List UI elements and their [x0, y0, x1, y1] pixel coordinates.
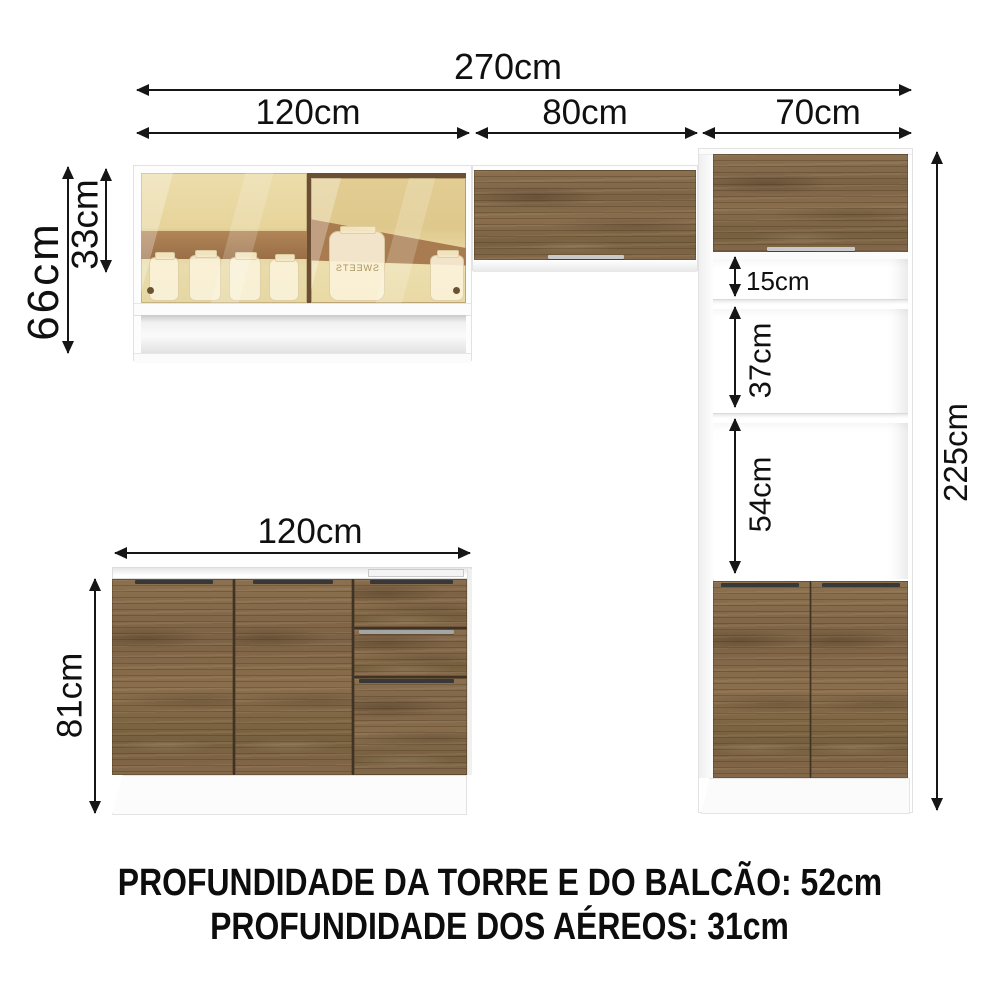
dim-label-section-right: 70cm	[718, 95, 918, 130]
dim-label-gap-bottom: 54cm	[735, 424, 785, 564]
dim-arrow-counter-height	[94, 579, 96, 813]
dim-label-section-left: 120cm	[208, 95, 408, 130]
tower-bottom-door-left	[713, 581, 810, 778]
wall-cabinet-80	[472, 165, 698, 271]
counter-drawer-2	[354, 629, 467, 676]
tower-left-panel	[699, 149, 714, 778]
glass-reflection	[311, 178, 466, 303]
tower-top-door-handle	[767, 247, 855, 251]
dim-arrow-glass-door-height	[105, 169, 107, 272]
counter-door-left	[112, 579, 233, 775]
dim-arrow-total-width	[137, 89, 911, 91]
tower-bottom-door-right-handle	[822, 583, 900, 587]
dim-label-glass-door-height: 33cm	[58, 139, 112, 309]
tower-base	[701, 778, 910, 814]
dim-arrow-section-left	[137, 132, 469, 134]
glass-door-left	[141, 173, 307, 303]
dim-label-total-height: 225cm	[930, 352, 982, 552]
product-dimension-diagram: 270cm 120cm 80cm 70cm 66cm 33cm	[0, 0, 1000, 1000]
dim-label-gap-middle: 37cm	[735, 290, 785, 430]
glass-door-row: SWEETS	[141, 173, 466, 303]
countertop	[112, 567, 472, 579]
wall-cabinet-80-bottom	[473, 260, 697, 272]
dim-arrow-section-right	[703, 132, 911, 134]
counter-drawer-2-handle	[359, 630, 454, 634]
counter-drawer-1	[354, 579, 467, 627]
dim-arrow-section-middle	[476, 132, 697, 134]
counter-door-left-handle	[135, 580, 213, 584]
wall-cabinet-bottom-edge	[134, 353, 471, 363]
wall-cabinet-80-handle	[548, 255, 624, 259]
dim-label-total-width: 270cm	[408, 49, 608, 85]
counter-drawer-3	[354, 678, 467, 775]
dim-label-counter-width: 120cm	[210, 514, 410, 549]
tower-bottom-doors	[713, 581, 908, 778]
dim-label-section-middle: 80cm	[485, 95, 685, 130]
glass-reflection	[141, 173, 307, 303]
countertop-tray	[368, 569, 464, 577]
glass-door-right: SWEETS	[307, 173, 466, 303]
dim-label-counter-height: 81cm	[45, 610, 95, 780]
wall-cabinet-80-door	[474, 170, 696, 260]
wall-cabinet-glass: SWEETS	[133, 165, 472, 361]
footer-depth-tower-counter: PROFUNDIDADE DA TORRE E DO BALCÃO: 52cm	[0, 864, 1000, 902]
counter-door-middle	[235, 579, 352, 775]
tower-top-door	[713, 154, 908, 252]
counter-plinth	[112, 775, 467, 815]
counter-door-middle-handle	[253, 580, 333, 584]
tower-bottom-door-left-handle	[721, 583, 799, 587]
counter-drawer-3-handle	[359, 679, 454, 683]
counter-side-panel	[467, 569, 472, 775]
tower-bottom-door-right	[811, 581, 908, 778]
open-shelf-niche	[141, 315, 466, 353]
counter-drawer-1-handle	[370, 580, 453, 584]
counter-body	[112, 579, 467, 775]
dim-arrow-counter-width	[115, 552, 470, 554]
footer-depth-wall-cabinets: PROFUNDIDADE DOS AÉREOS: 31cm	[0, 908, 1000, 946]
tower-cabinet	[698, 148, 913, 813]
counter-cabinet	[112, 567, 472, 815]
